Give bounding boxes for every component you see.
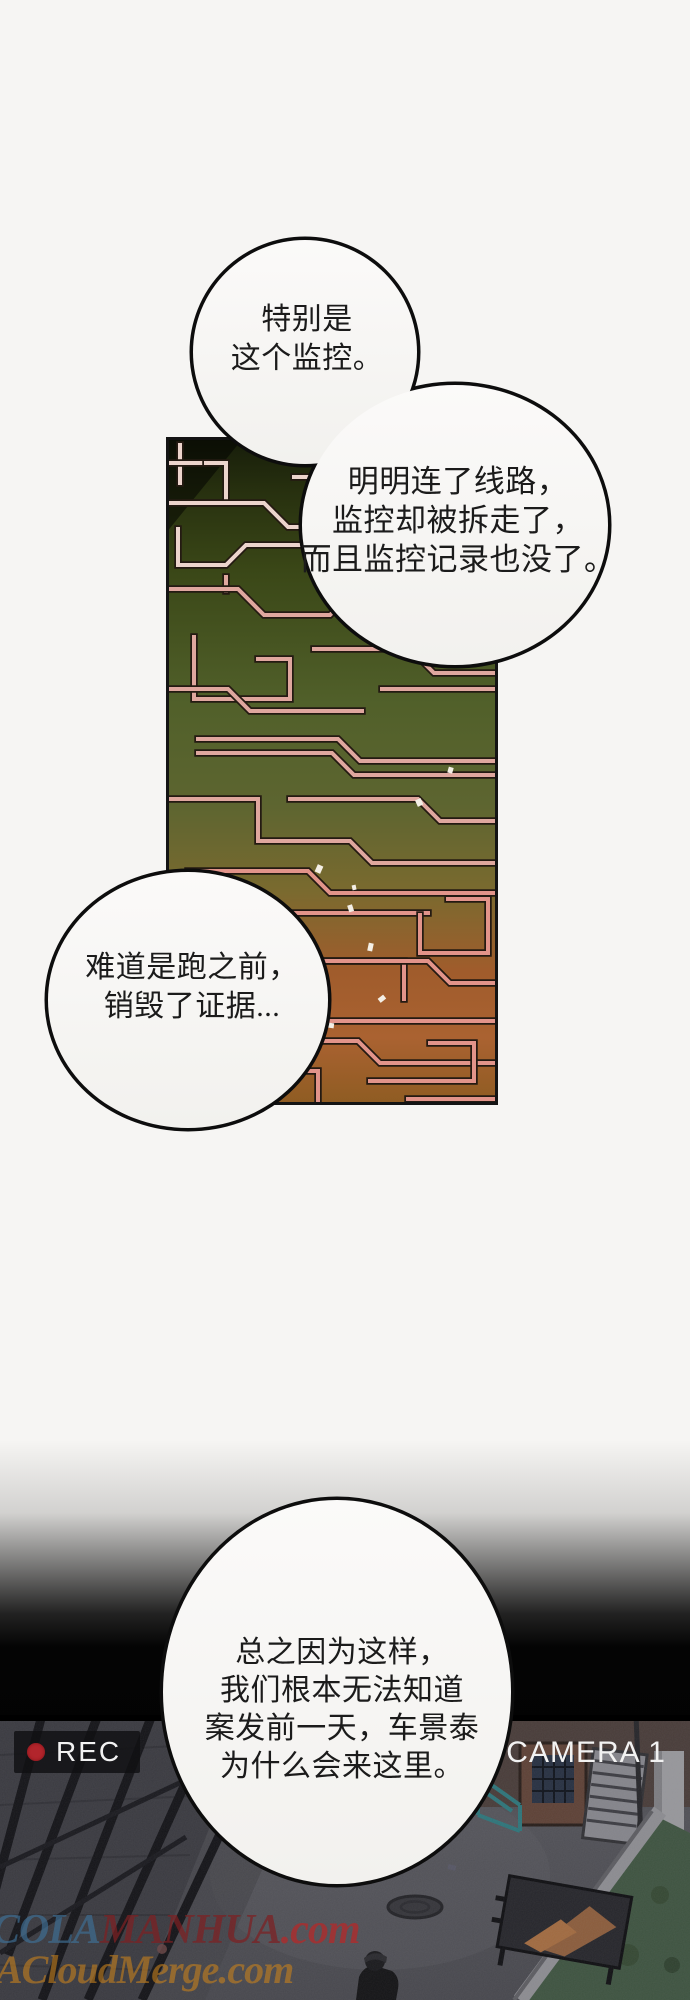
speech-bubble-3-text: 难道是跑之前， 销毁了证据... — [85, 948, 299, 1026]
rec-dot-icon — [27, 1743, 45, 1761]
speech-bubble-1-text: 特别是 这个监控。 — [231, 300, 384, 378]
speech-bubble-4-text: 总之因为这样， 我们根本无法知道 案发前一天，车景泰 为什么会来这里。 — [205, 1634, 480, 1786]
bubble-text-line: 销毁了证据... — [85, 987, 299, 1026]
rec-badge: REC — [14, 1731, 140, 1773]
bubble-text-line: 特别是 — [231, 300, 384, 339]
bubble-text-line: 明明连了线路， — [301, 462, 616, 501]
rec-label: REC — [56, 1736, 121, 1768]
bubble-text-line: 这个监控。 — [231, 339, 384, 378]
camera-label: CAMERA 1 — [506, 1736, 666, 1770]
comic-page: COLAMANHUA.com ACloudMerge.com REC CAMER… — [0, 0, 690, 2000]
bubble-text-line: 难道是跑之前， — [85, 948, 299, 987]
bubble-text-line: 总之因为这样， — [205, 1634, 480, 1672]
speech-bubble-2-text: 明明连了线路， 监控却被拆走了， 而且监控记录也没了。 — [301, 462, 616, 579]
bubble-text-line: 案发前一天，车景泰 — [205, 1710, 480, 1748]
bubble-text-line: 为什么会来这里。 — [205, 1748, 480, 1786]
watermark-acloudmerge: ACloudMerge.com — [0, 1946, 293, 1993]
bubble-text-line: 我们根本无法知道 — [205, 1672, 480, 1710]
bubble-text-line: 而且监控记录也没了。 — [301, 540, 616, 579]
bubble-text-line: 监控却被拆走了， — [301, 501, 616, 540]
